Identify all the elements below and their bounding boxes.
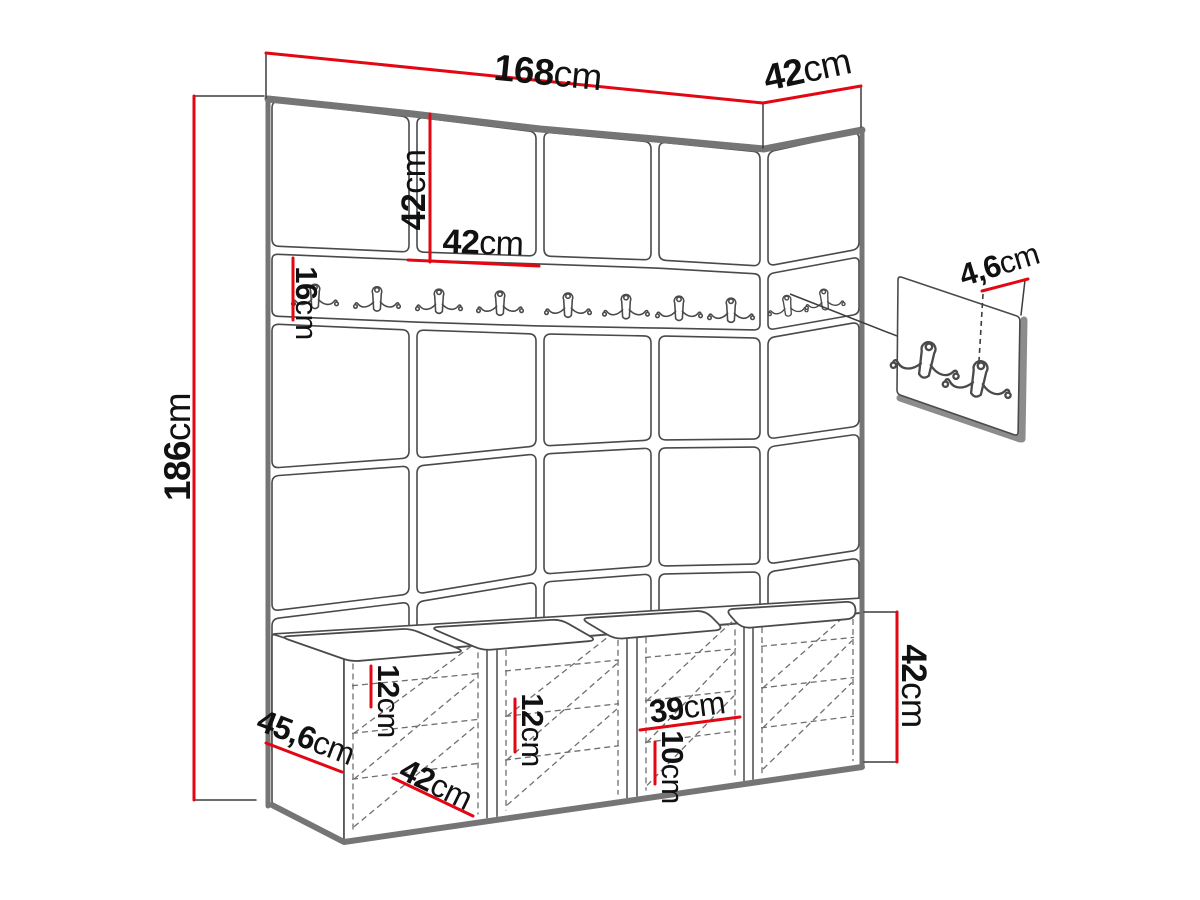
dimension-unit: cm [395,150,433,194]
hook-screw-hole [624,295,628,299]
hook-screw-hole [375,288,379,292]
upholstered-panel [272,466,409,610]
hook-tip-left [890,362,896,368]
extension-line [1021,280,1025,315]
dimension-label-panel-width: 42cm [442,223,524,264]
dimension-value: 42 [895,644,934,682]
dimension-label-bench-height: 42cm [895,644,934,727]
storage-bench [272,598,862,842]
upholstered-panel [544,334,651,446]
upholstered-panel [272,102,409,252]
dimension-value: 39 [647,690,686,730]
upholstered-panel-side [768,323,859,438]
dimension-unit: cm [799,40,855,90]
hook-tip-right [459,307,463,311]
upholstered-panel [417,330,536,457]
hook-tip-left [708,316,712,320]
hook-tip-right [751,316,755,320]
dimension-unit: cm [290,300,325,340]
upholstered-panel [417,455,536,593]
dimension-unit: cm [372,698,407,738]
dimension-value: 168 [492,46,556,93]
dimension-label-total-height: 186cm [157,393,198,501]
dimension-value: 10 [656,730,691,763]
dimension-value: 12 [516,693,551,726]
hook-tip-right [646,312,650,316]
dimension-label-panel-height: 42cm [395,150,433,231]
hook-tip-left [768,312,771,315]
hook-rail-side [768,258,859,329]
hook-tip-right [397,305,401,309]
dimension-value: 16 [290,266,325,300]
upholstered-panel [659,447,760,566]
hook-panel-front [897,277,1020,435]
dimension-label-total-width: 168cm [492,46,604,97]
dimension-label-bench-shelf-gap-left: 12cm [372,664,407,737]
dimension-unit: cm [994,235,1043,280]
dimension-unit: cm [681,684,727,725]
hook-tip-right [699,314,703,318]
upholstered-panel [659,143,760,266]
upholstered-panel [272,324,409,467]
dimension-value: 42 [442,223,480,262]
hook-screw-hole [822,290,826,294]
upholstered-panel [544,448,651,573]
hook-tip-left [603,312,607,316]
hook-screw-hole [566,294,570,298]
dimension-unit: cm [552,52,604,98]
hook-tip-right [588,311,592,315]
dimension-value: 42 [395,194,433,231]
upholstered-panel-side [768,435,859,563]
hook-tip-right [953,373,959,379]
hook-tip-right [1005,392,1011,398]
hook-screw-hole [785,296,789,300]
dimension-unit: cm [656,764,691,804]
panel-thickness-right [1022,320,1024,439]
hook-screw-hole [677,297,681,301]
upholstered-panel [659,336,760,440]
hook-tip-right [335,302,339,306]
dimension-label-bench-shelf-gap-mid: 12cm [516,693,551,766]
hook-tip-right [520,309,524,313]
dimension-label-hook-panel-thickness: 4,6cm [955,235,1043,292]
hook-tip-left [942,381,948,387]
dimension-value: 12 [372,664,407,697]
diagram-canvas: 168cm42cm186cm42cm42cm16cm4,6cm12cm12cm3… [0,0,1200,900]
hook-screw-hole [925,343,933,351]
furniture-dimension-diagram: 168cm42cm186cm42cm42cm16cm4,6cm12cm12cm3… [0,0,1200,900]
hook-screw-hole [498,292,502,296]
upholstered-panel [544,133,651,260]
dimension-label-bench-shelf-gap-low: 10cm [656,730,691,803]
hook-screw-hole [977,362,985,370]
hook-tip-left [805,306,808,309]
hook-tip-left [477,309,481,313]
hook-tip-left [416,307,420,311]
upholstered-panel-side [768,133,859,265]
hook-tip-left [656,314,660,318]
hook-screw-hole [437,290,441,294]
dimension-unit: cm [895,682,934,727]
hook-tip-left [354,305,358,309]
hook-tip-left [545,311,549,315]
dimension-unit: cm [516,727,551,767]
hook-screw-hole [729,299,733,303]
hook-tip-right [842,302,845,305]
dimension-unit: cm [157,393,198,441]
dimension-label-rail-height: 16cm [290,266,325,339]
dimension-value: 186 [157,441,198,501]
dimension-unit: cm [479,224,524,264]
